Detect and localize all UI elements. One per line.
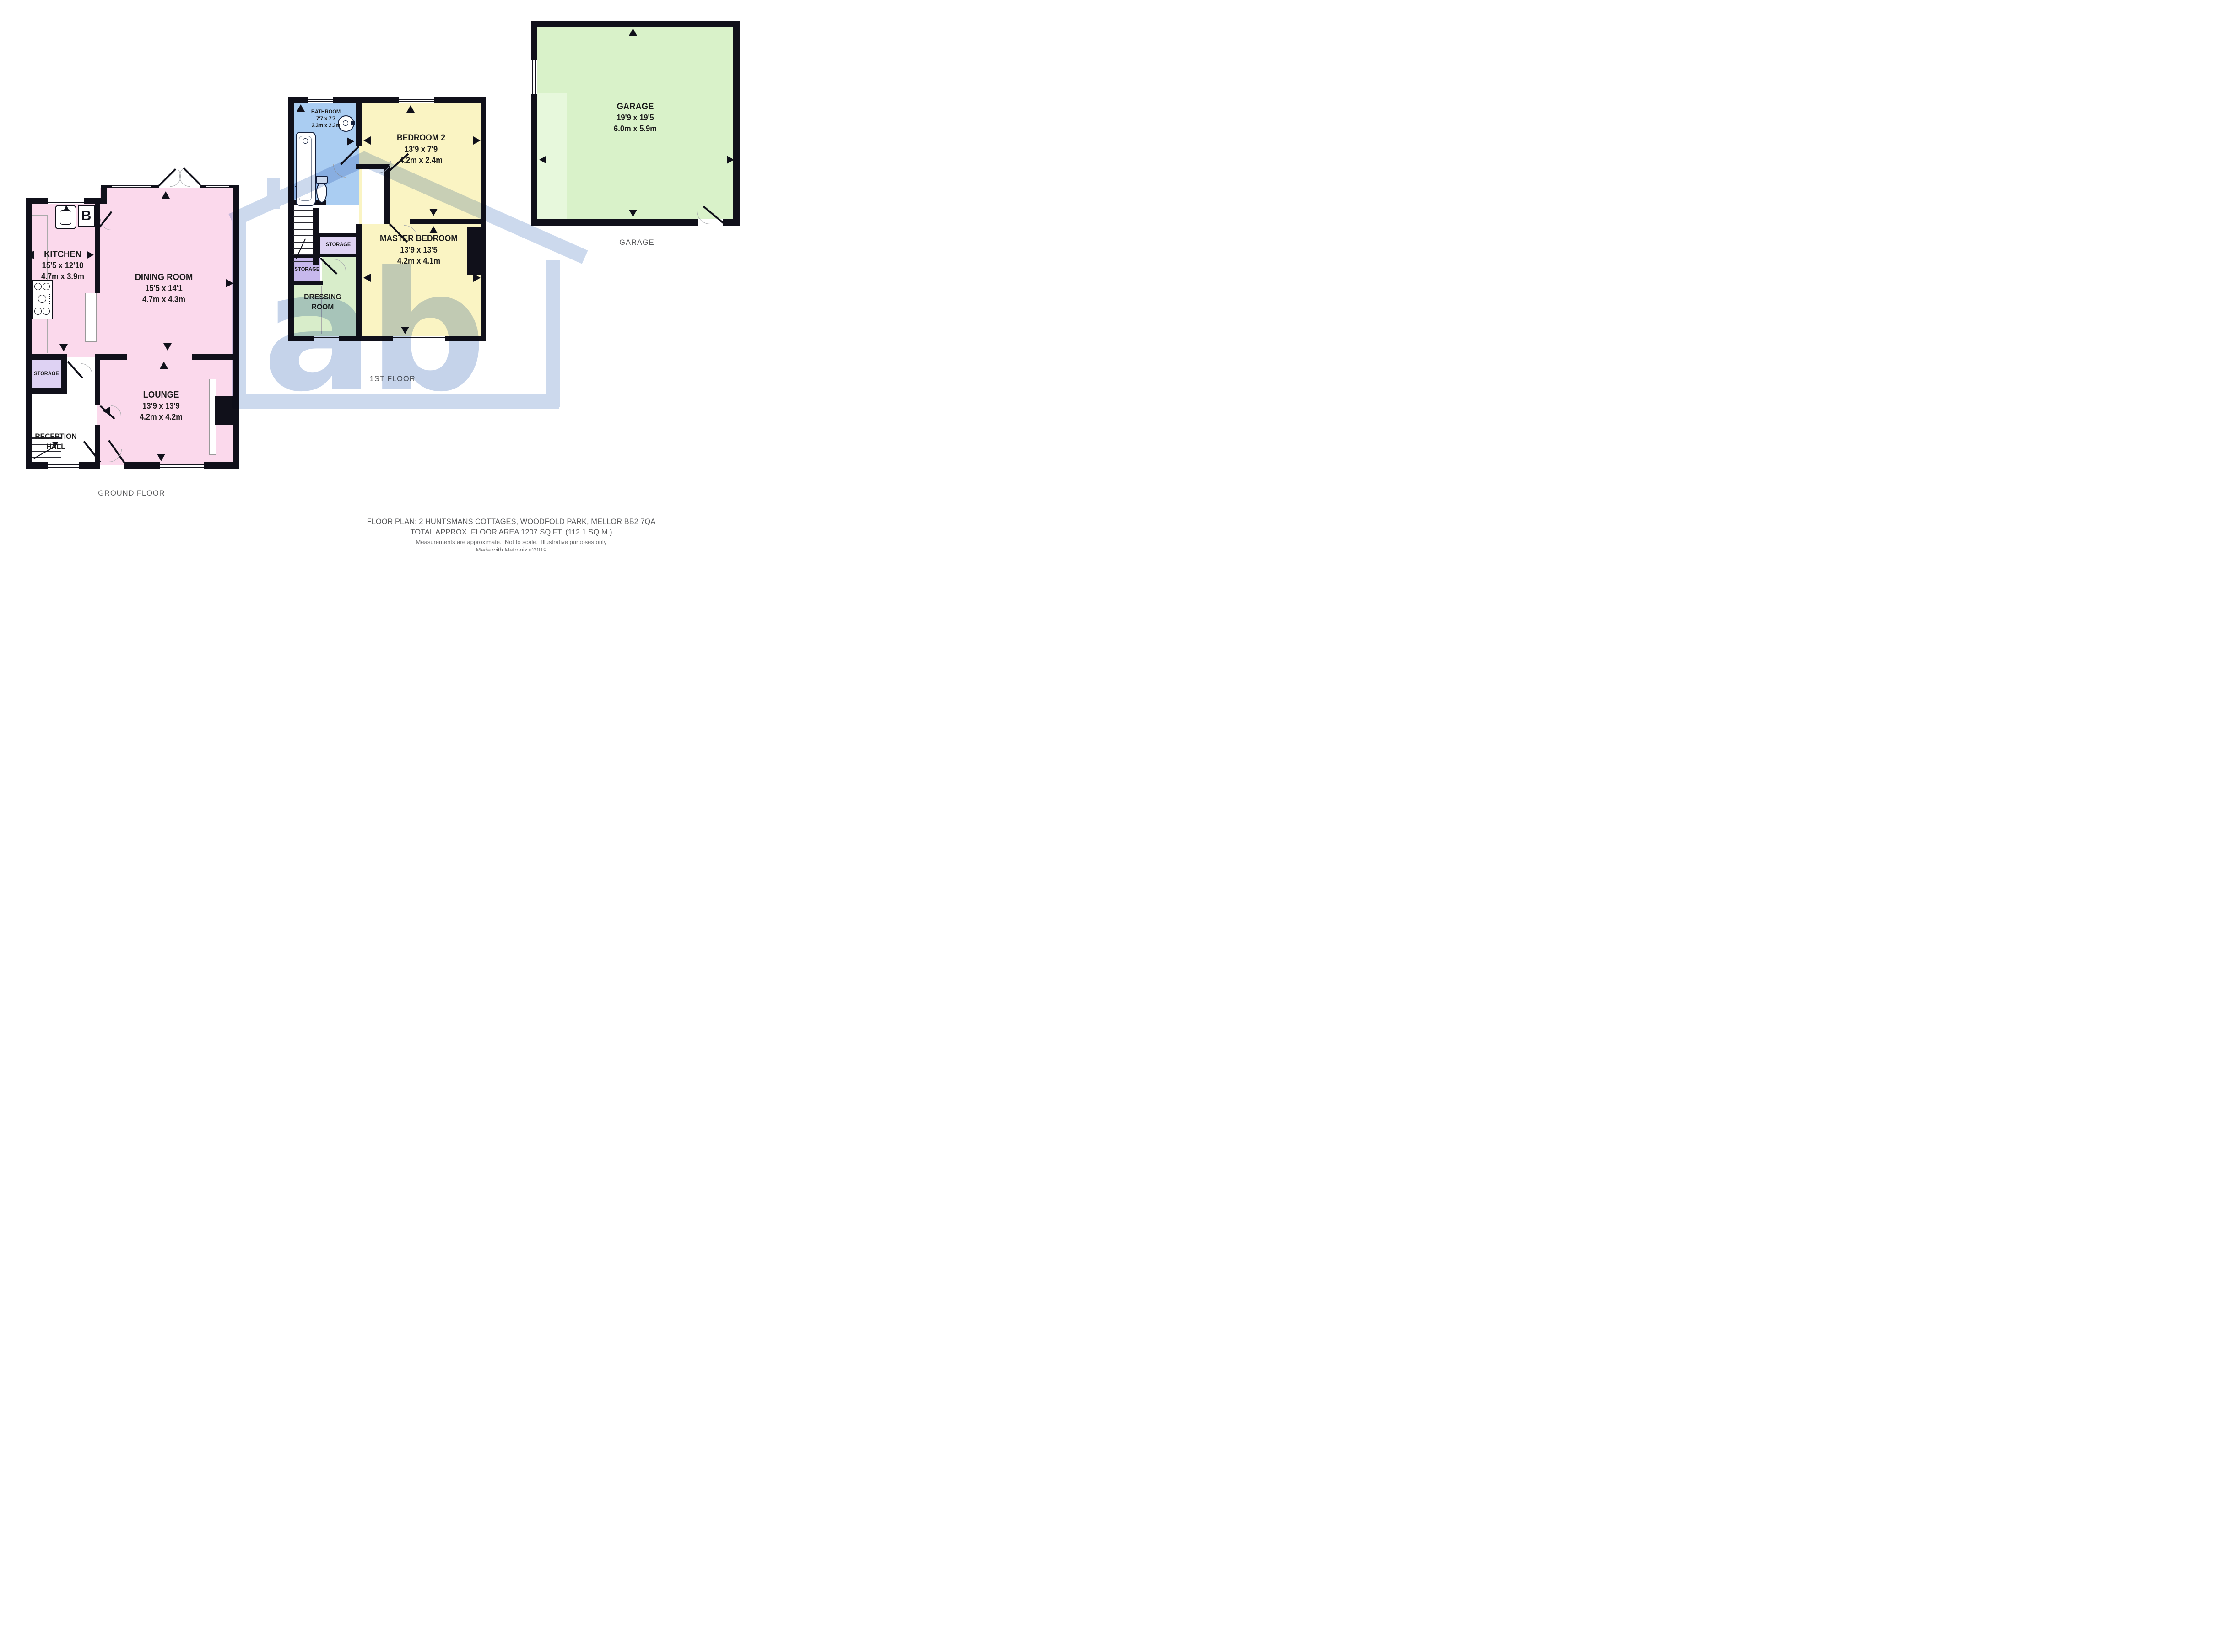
boiler-label: B xyxy=(81,208,92,223)
room-name: MASTER BEDROOM xyxy=(370,234,467,244)
direction-arrow-icon xyxy=(429,209,438,216)
wall xyxy=(531,219,698,226)
wall xyxy=(531,21,537,60)
room-size-metric: 2.3m x 2.3m xyxy=(301,123,351,129)
room-name: KITCHEN xyxy=(31,249,94,259)
window xyxy=(314,340,339,340)
bedroom2-label: BEDROOM 2 13'9 x 7'9 4.2m x 2.4m xyxy=(379,134,463,165)
wall xyxy=(204,462,239,469)
wall xyxy=(356,103,362,146)
direction-arrow-icon xyxy=(473,274,481,282)
landing-pocket xyxy=(362,169,386,224)
direction-arrow-icon xyxy=(226,279,233,287)
wall xyxy=(79,462,100,469)
wall xyxy=(26,354,67,360)
hob-icon xyxy=(32,280,53,319)
wall xyxy=(733,21,740,226)
direction-arrow-icon xyxy=(727,156,734,164)
room-name-line2: HALL xyxy=(27,443,86,451)
wall xyxy=(104,185,112,188)
floorplan-page: B KITCHEN 15'5 x 12'10 4.7m x 3.9m xyxy=(0,0,743,551)
window xyxy=(48,200,84,200)
wall xyxy=(26,388,67,394)
storage-ground-label: STORAGE xyxy=(30,371,63,377)
room-size-metric: 4.2m x 2.4m xyxy=(379,156,463,165)
room-size-imperial: 13'9 x 13'9 xyxy=(119,402,203,411)
lounge-label: LOUNGE 13'9 x 13'9 4.2m x 4.2m xyxy=(119,390,203,422)
window xyxy=(314,337,339,338)
wall xyxy=(26,198,32,469)
window xyxy=(308,99,333,100)
direction-arrow-icon xyxy=(629,28,637,36)
room-name: DINING ROOM xyxy=(122,272,206,282)
window xyxy=(160,464,204,465)
window xyxy=(48,464,79,465)
wall xyxy=(410,219,481,224)
direction-arrow-icon xyxy=(429,226,438,233)
room-name-line1: DRESSING xyxy=(295,293,350,302)
direction-arrow-icon xyxy=(157,454,165,461)
footer-credit: Made with Metropix ©2019 xyxy=(305,546,717,551)
wall xyxy=(291,281,323,285)
bath-icon xyxy=(296,132,316,206)
wall xyxy=(200,185,206,188)
room-size-metric: 6.0m x 5.9m xyxy=(593,124,677,134)
direction-arrow-icon xyxy=(363,274,371,282)
room-size-imperial: 13'9 x 7'9 xyxy=(379,145,463,154)
garage-label: GARAGE 19'9 x 19'5 6.0m x 5.9m xyxy=(593,102,677,134)
window xyxy=(393,336,445,341)
room-size-metric: 4.7m x 3.9m xyxy=(31,272,94,281)
window xyxy=(399,99,434,100)
window xyxy=(308,101,333,102)
wall xyxy=(313,208,319,265)
room-size-imperial: 19'9 x 19'5 xyxy=(593,113,677,123)
window xyxy=(314,336,339,341)
wall xyxy=(481,97,486,341)
direction-arrow-icon xyxy=(163,343,172,351)
footer: FLOOR PLAN: 2 HUNTSMANS COTTAGES, WOODFO… xyxy=(305,517,717,551)
window xyxy=(393,340,445,340)
kitchen-unit xyxy=(85,293,97,342)
window xyxy=(206,185,229,186)
storage-upper-label: STORAGE xyxy=(322,242,355,248)
room-size-metric: 4.7m x 4.3m xyxy=(122,295,206,304)
window xyxy=(535,60,536,94)
room-size-metric: 4.2m x 4.1m xyxy=(370,257,467,266)
room-name: STORAGE xyxy=(30,371,63,377)
wall xyxy=(531,94,537,226)
wall xyxy=(723,219,740,226)
kitchen-label: KITCHEN 15'5 x 12'10 4.7m x 3.9m xyxy=(31,249,94,281)
garage-caption: GARAGE xyxy=(619,238,654,247)
window xyxy=(48,467,79,468)
ground-floor-caption: GROUND FLOOR xyxy=(98,489,165,498)
footer-address: FLOOR PLAN: 2 HUNTSMANS COTTAGES, WOODFO… xyxy=(312,517,711,526)
window xyxy=(393,337,445,338)
direction-arrow-icon xyxy=(103,407,110,415)
wall xyxy=(124,462,160,469)
window xyxy=(112,185,151,186)
storage-lower-label: STORAGE xyxy=(294,266,320,272)
window xyxy=(399,97,434,103)
direction-arrow-icon xyxy=(160,362,168,369)
first-floor-caption: 1ST FLOOR xyxy=(370,374,416,383)
window xyxy=(206,187,229,188)
direction-arrow-icon xyxy=(226,407,233,415)
toilet-icon xyxy=(316,176,328,202)
wall xyxy=(531,21,740,27)
master-bedroom-label: MASTER BEDROOM 13'9 x 13'5 4.2m x 4.1m xyxy=(370,234,467,265)
window xyxy=(399,101,434,102)
wall xyxy=(229,185,239,188)
direction-arrow-icon xyxy=(406,105,415,113)
room-name: BATHROOM xyxy=(301,109,351,115)
wall xyxy=(95,204,100,293)
wall xyxy=(95,360,100,405)
window xyxy=(112,187,151,188)
wall xyxy=(356,224,362,336)
direction-arrow-icon xyxy=(401,327,409,334)
room-name: STORAGE xyxy=(294,266,320,272)
boiler-icon: B xyxy=(78,205,95,227)
wall xyxy=(233,185,239,469)
door-arc xyxy=(160,166,181,187)
footer-disclaimer: Measurements are approximate. Not to sca… xyxy=(305,539,717,545)
room-size-imperial: 13'9 x 13'5 xyxy=(370,246,467,255)
room-name-line1: RECEPTION xyxy=(27,432,86,441)
dressing-room-label: DRESSING ROOM xyxy=(295,293,350,311)
sink-icon xyxy=(55,205,76,229)
room-size-metric: 4.2m x 4.2m xyxy=(119,413,203,422)
room-size-imperial: 15'5 x 14'1 xyxy=(122,284,206,293)
room-name: LOUNGE xyxy=(119,390,203,400)
wall xyxy=(318,254,356,257)
window xyxy=(48,198,84,204)
window xyxy=(532,60,533,94)
reception-hall-label: RECEPTION HALL xyxy=(27,432,86,451)
bathroom-label: BATHROOM 7'7 x 7'7 2.3m x 2.3m xyxy=(301,109,351,129)
chimney-breast xyxy=(467,227,481,275)
stairs-icon xyxy=(293,210,313,265)
wall xyxy=(384,169,390,224)
wall xyxy=(26,462,48,469)
worktop-line xyxy=(32,215,47,216)
direction-arrow-icon xyxy=(629,210,637,217)
room-name-line2: ROOM xyxy=(295,303,350,312)
wall xyxy=(95,354,127,360)
window xyxy=(308,97,333,103)
wall xyxy=(192,354,233,360)
direction-arrow-icon xyxy=(347,137,354,146)
room-size-imperial: 15'5 x 12'10 xyxy=(31,261,94,270)
direction-arrow-icon xyxy=(162,191,170,199)
wall xyxy=(151,185,159,188)
wall xyxy=(318,233,356,237)
direction-arrow-icon xyxy=(363,136,371,145)
dining-room-label: DINING ROOM 15'5 x 14'1 4.7m x 4.3m xyxy=(122,272,206,304)
door-arc xyxy=(179,166,200,187)
room-name: STORAGE xyxy=(322,242,355,248)
room-name: GARAGE xyxy=(593,102,677,112)
footer-area: TOTAL APPROX. FLOOR AREA 1207 SQ.FT. (11… xyxy=(312,528,711,537)
direction-arrow-icon xyxy=(539,156,546,164)
room-size-imperial: 7'7 x 7'7 xyxy=(301,116,351,122)
direction-arrow-icon xyxy=(473,136,481,145)
window xyxy=(48,202,84,203)
room-name: BEDROOM 2 xyxy=(379,134,463,143)
window xyxy=(160,467,204,468)
direction-arrow-icon xyxy=(59,344,68,351)
wall xyxy=(101,185,107,204)
